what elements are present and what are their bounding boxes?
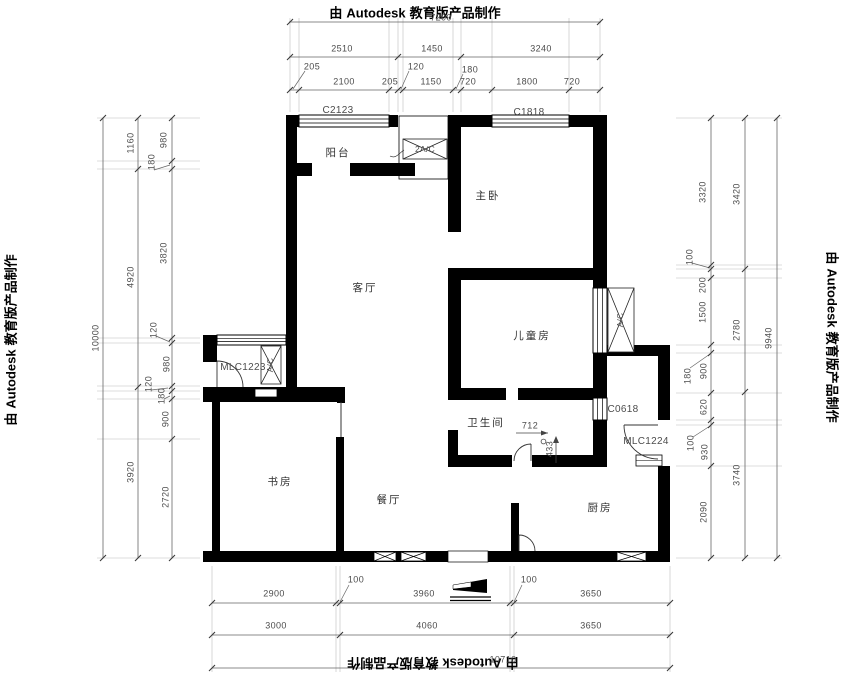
- dim-top-row3-8: 720: [564, 78, 580, 87]
- dim-top-row3-3: 120: [408, 63, 424, 72]
- branding-suffix: 教育版产品制作: [347, 656, 438, 671]
- branding-suffix: 教育版产品制作: [410, 6, 501, 21]
- label-window-c1818: C1818: [514, 108, 545, 118]
- branding-prefix: 由: [4, 413, 19, 426]
- dim-left-mid-1: 4920: [127, 266, 136, 288]
- dim-interior-drain-x: 712: [522, 422, 538, 431]
- window-sill-left: [255, 389, 277, 397]
- dim-bottom-row1-1: 100: [348, 576, 364, 585]
- label-window-c2123: C2123: [323, 106, 354, 116]
- dim-left-inner-7: 900: [162, 411, 171, 427]
- dim-top-row3-2: 205: [382, 78, 398, 87]
- dim-right-inner-4: 180: [684, 368, 693, 384]
- dim-top-row3-6: 720: [460, 78, 476, 87]
- dim-bottom-row1-4: 3650: [580, 590, 602, 599]
- label-ac-platform: 2A/C: [415, 145, 435, 154]
- dim-right-inner-8: 930: [701, 444, 710, 460]
- dim-right-inner-3: 1500: [699, 301, 708, 323]
- dim-left-inner-3: 120: [150, 322, 159, 338]
- dim-top-row3-0: 205: [304, 63, 320, 72]
- dim-top-row3-7: 1800: [516, 78, 538, 87]
- room-label-dining-room: 餐厅: [377, 495, 402, 506]
- branding-prefix: 由: [825, 251, 840, 264]
- door-bathroom-swing: [514, 444, 531, 461]
- dim-bottom-row2-0: 3000: [265, 622, 287, 631]
- dim-top-row2-2: 3240: [530, 45, 552, 54]
- room-label-children-room: 儿童房: [513, 331, 551, 342]
- dim-top-total: 7200: [430, 14, 452, 23]
- dim-right-inner-2: 200: [699, 277, 708, 293]
- branding-suffix: 教育版产品制作: [4, 254, 19, 345]
- dim-right-mid-0: 3420: [733, 183, 742, 205]
- window-bay-left: [217, 335, 286, 345]
- dim-right-inner-5: 900: [700, 363, 709, 379]
- dim-bottom-row1-3: 100: [521, 576, 537, 585]
- dim-interior-drain-y: 433: [546, 441, 555, 457]
- dim-left-inner-1: 180: [148, 154, 157, 170]
- floorplan-drawing: [0, 0, 850, 680]
- dim-left-mid-2: 3920: [127, 461, 136, 483]
- dim-left-mid-0: 1160: [127, 133, 136, 154]
- branding-suffix: 教育版产品制作: [825, 332, 840, 423]
- dim-top-row2-1: 1450: [421, 45, 443, 54]
- label-ac-unit-left: A/C: [267, 358, 275, 373]
- room-label-master-bedroom: 主卧: [476, 191, 501, 202]
- label-window-c0618: C0618: [608, 405, 639, 415]
- dim-left-inner-5: 120: [145, 376, 154, 392]
- dim-right-inner-7: 100: [687, 435, 696, 451]
- entrance-icon: [450, 579, 491, 601]
- ac-units: [261, 139, 634, 384]
- dim-top-row3-4: 1150: [421, 78, 442, 87]
- dim-right-inner-1: 100: [686, 249, 695, 265]
- dim-left-total: 10000: [92, 324, 101, 351]
- dim-top-row2-0: 2510: [331, 45, 353, 54]
- branding-left: 由Autodesk教育版产品制作: [1, 252, 20, 427]
- dim-bottom-row1-0: 2900: [263, 590, 285, 599]
- dim-right-inner-9: 2090: [700, 501, 709, 523]
- dim-right-mid-2: 3740: [733, 464, 742, 486]
- dim-bottom-total: 10710: [489, 656, 516, 665]
- branding-name: Autodesk: [346, 6, 405, 21]
- branding-name: Autodesk: [825, 268, 840, 327]
- dim-left-inner-2: 3820: [160, 242, 169, 264]
- dim-right-mid-1: 2780: [733, 319, 742, 341]
- room-label-living-room: 客厅: [353, 283, 378, 294]
- label-ac-unit-right: A/C: [617, 313, 625, 328]
- window-c0618: [593, 398, 607, 420]
- label-door-mlc1224: MLC1224: [623, 437, 668, 447]
- room-label-bathroom: 卫生间: [467, 418, 505, 429]
- branding-right: 由Autodesk教育版产品制作: [824, 249, 843, 424]
- dim-top-row3-5: 180: [462, 66, 478, 75]
- floorplan-page: 由Autodesk教育版产品制作 由Autodesk教育版产品制作 由Autod…: [0, 0, 850, 680]
- dim-right-inner-0: 3320: [699, 181, 708, 203]
- dim-bottom-row2-1: 4060: [416, 622, 438, 631]
- dim-right-inner-6: 620: [700, 399, 709, 415]
- dim-left-inner-0: 980: [160, 132, 169, 148]
- dim-bottom-row1-2: 3960: [413, 590, 435, 599]
- dim-bottom-row2-2: 3650: [580, 622, 602, 631]
- room-label-balcony: 阳台: [326, 148, 351, 159]
- branding-name: Autodesk: [4, 349, 19, 408]
- room-label-kitchen: 厨房: [588, 503, 613, 514]
- entrance-door-opening: [448, 551, 488, 562]
- dim-left-inner-8: 2720: [162, 486, 171, 508]
- dim-left-inner-6: 180: [158, 388, 167, 404]
- room-label-study: 书房: [268, 477, 293, 488]
- door-kitchen-swing: [519, 535, 535, 551]
- dim-left-inner-4: 980: [163, 356, 172, 372]
- dim-right-total: 9940: [765, 327, 774, 349]
- branding-top: 由Autodesk教育版产品制作: [327, 3, 502, 22]
- window-c2123: [299, 115, 389, 127]
- branding-prefix: 由: [329, 6, 342, 21]
- window-children-east: [593, 288, 607, 353]
- dim-top-row3-1: 2100: [333, 78, 355, 87]
- label-door-mlc1223: MLC1223: [220, 363, 265, 373]
